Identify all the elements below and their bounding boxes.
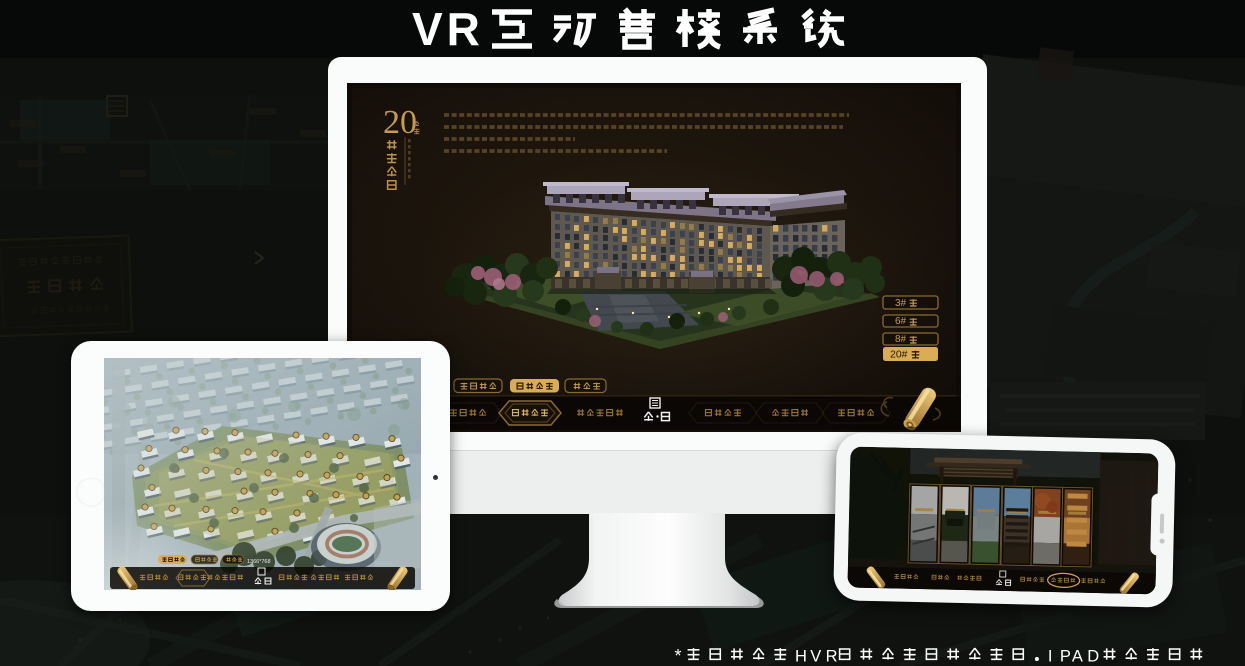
svg-text:V: V bbox=[810, 648, 821, 666]
svg-text:1366*768: 1366*768 bbox=[247, 559, 271, 565]
svg-text:20: 20 bbox=[383, 104, 417, 141]
svg-text:R: R bbox=[826, 648, 838, 666]
svg-text:D: D bbox=[1087, 648, 1099, 666]
svg-text:8#: 8# bbox=[895, 334, 907, 345]
svg-text:VR: VR bbox=[412, 3, 484, 55]
svg-text:I: I bbox=[1048, 648, 1053, 666]
svg-text:*: * bbox=[675, 646, 682, 666]
svg-text:20#: 20# bbox=[890, 349, 908, 361]
svg-text:P: P bbox=[1060, 648, 1071, 666]
svg-text:H: H bbox=[795, 648, 807, 666]
svg-text:A: A bbox=[1072, 648, 1083, 666]
svg-text:6#: 6# bbox=[895, 316, 907, 327]
svg-text:3#: 3# bbox=[895, 298, 907, 309]
